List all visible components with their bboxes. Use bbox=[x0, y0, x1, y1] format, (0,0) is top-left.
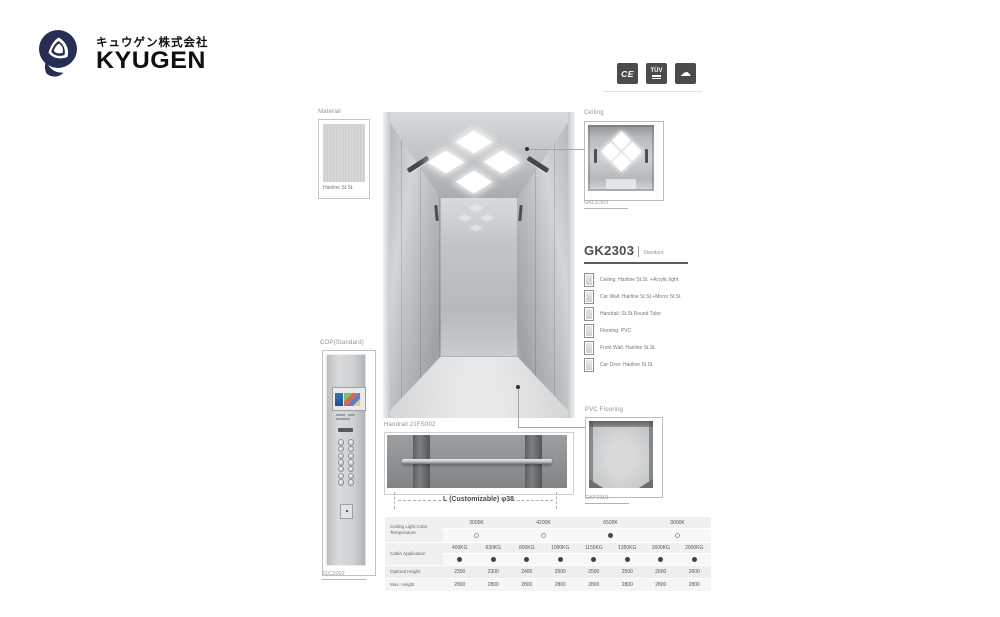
radio-4200k[interactable] bbox=[541, 533, 547, 539]
product-title-rule bbox=[584, 262, 688, 264]
capacity-dot-cell bbox=[510, 554, 544, 565]
cop-button bbox=[348, 439, 355, 446]
ceiling-vent-slot-right bbox=[645, 149, 648, 163]
ceiling-detail-render bbox=[588, 125, 654, 191]
dimension-line-right bbox=[556, 492, 558, 509]
flooring-wall-edge bbox=[649, 421, 653, 488]
door-jamb-left bbox=[383, 112, 390, 418]
flooring-wall-edge bbox=[589, 421, 653, 427]
capacity-dot-cell bbox=[443, 554, 477, 565]
cop-button bbox=[338, 446, 345, 453]
cop-button bbox=[338, 473, 345, 480]
row-label-application: Cabin Application bbox=[385, 543, 443, 565]
temp-option-label: 6500K bbox=[577, 517, 644, 528]
cop-button bbox=[348, 459, 355, 466]
row-label-optimal-height: Optimal Height bbox=[385, 566, 443, 578]
spec-item-handrail: Handrail: St.St.Round Tube bbox=[584, 307, 661, 321]
cop-button bbox=[348, 473, 355, 480]
elevator-interior-render bbox=[383, 112, 575, 418]
pvc-flooring-caption: PVC Flooring bbox=[585, 407, 623, 413]
light-reflection bbox=[458, 214, 472, 222]
spec-table: Ceiling Light Color Temperature Cabin Ap… bbox=[385, 517, 711, 591]
cop-button bbox=[348, 453, 355, 460]
cop-text-line bbox=[336, 418, 350, 420]
cop-display-screen bbox=[332, 387, 366, 411]
optimal-height-value: 2400 bbox=[510, 566, 544, 578]
max-height-value: 2800 bbox=[644, 579, 678, 591]
optimal-height-value: 2500 bbox=[577, 566, 611, 578]
floor-callout-line-h bbox=[518, 427, 585, 428]
company-name-english: KYUGEN bbox=[96, 50, 209, 72]
floor-callout-line-v bbox=[518, 389, 519, 428]
dot-2000kg[interactable] bbox=[692, 557, 697, 562]
cloud-certification-icon: ☁ bbox=[675, 63, 696, 84]
material-thumb-icon bbox=[584, 358, 594, 372]
radio-3000k[interactable] bbox=[474, 533, 480, 539]
cop-key-switch bbox=[340, 504, 353, 519]
capacity-label: 1000KG bbox=[544, 543, 578, 553]
light-reflection bbox=[469, 224, 483, 232]
cop-button bbox=[338, 466, 345, 473]
cop-button bbox=[338, 459, 345, 466]
cop-floor-buttons bbox=[336, 439, 356, 486]
capacity-dot-cell bbox=[544, 554, 578, 565]
optimal-height-value: 2300 bbox=[443, 566, 477, 578]
optimal-height-value: 2300 bbox=[477, 566, 511, 578]
spec-item-car-door: Car Door: Hairline St.St. bbox=[584, 358, 654, 372]
cop-button bbox=[348, 446, 355, 453]
optimal-height-value: 2600 bbox=[644, 566, 678, 578]
material-thumb-icon bbox=[584, 324, 594, 338]
cop-button bbox=[338, 479, 345, 486]
multimedia-screen bbox=[344, 393, 360, 406]
handrail-bar bbox=[402, 459, 552, 464]
cop-caption: COP(Standard) bbox=[320, 340, 364, 346]
capacity-label: 800KG bbox=[510, 543, 544, 553]
flooring-wall-edge bbox=[589, 421, 593, 488]
optimal-height-value: 2500 bbox=[544, 566, 578, 578]
ceiling-callout-line bbox=[529, 149, 584, 150]
cop-text-line bbox=[348, 414, 355, 416]
max-height-value: 2800 bbox=[611, 579, 645, 591]
light-reflection bbox=[480, 214, 494, 222]
temp-option-label: 4200K bbox=[510, 517, 577, 528]
dimension-dash-right bbox=[512, 500, 553, 502]
flooring-corner bbox=[589, 479, 603, 488]
max-height-value: 2800 bbox=[577, 579, 611, 591]
tuv-certification-icon: TÜV bbox=[646, 63, 667, 84]
handrail-caption: Handrail 21FS002 bbox=[384, 422, 436, 428]
material-swatch-card: Hairline St.St. bbox=[318, 119, 370, 199]
cop-button bbox=[348, 479, 355, 486]
temp-radio-cell bbox=[510, 529, 577, 542]
temp-option-label: 3000K bbox=[443, 517, 510, 528]
cop-button bbox=[338, 453, 345, 460]
dot-1000kg[interactable] bbox=[558, 557, 563, 562]
capacity-label: 400KG bbox=[443, 543, 477, 553]
handrail-card bbox=[384, 432, 574, 495]
material-thumb-icon bbox=[584, 290, 594, 304]
dot-1350kg[interactable] bbox=[625, 557, 630, 562]
cop-panel-card bbox=[322, 350, 376, 576]
material-thumb-icon bbox=[584, 273, 594, 287]
temp-radio-cell bbox=[577, 529, 644, 542]
floor-reflection bbox=[606, 179, 636, 189]
spec-item-ceiling: Ceiling: Hairline St.St. +Acrylic light bbox=[584, 273, 678, 287]
capacity-dot-cell bbox=[678, 554, 712, 565]
capacity-label: 1150KG bbox=[577, 543, 611, 553]
optimal-height-value: 2600 bbox=[678, 566, 712, 578]
ceiling-model-label: GKD2303 bbox=[584, 200, 628, 209]
row-label-max-height: Max. Height bbox=[385, 579, 443, 591]
door-jamb-right bbox=[568, 112, 575, 418]
row-label-temperature: Ceiling Light Color Temperature bbox=[385, 517, 443, 542]
cab-back-wall bbox=[441, 197, 517, 357]
temp-option-label: 9000K bbox=[644, 517, 711, 528]
cop-panel-render bbox=[326, 354, 366, 566]
dot-400kg[interactable] bbox=[457, 557, 462, 562]
spec-item-flooring: Flooring: PVC bbox=[584, 324, 631, 338]
dot-1150kg[interactable] bbox=[591, 557, 596, 562]
capacity-label: 630KG bbox=[477, 543, 511, 553]
product-grade: Standard bbox=[643, 250, 663, 257]
dot-800kg[interactable] bbox=[524, 557, 529, 562]
spec-item-front-wall: Front Wall: Hairline St.St. bbox=[584, 341, 656, 355]
material-thumb-icon bbox=[584, 307, 594, 321]
dimension-dash-left bbox=[398, 500, 441, 502]
capacity-label: 1350KG bbox=[611, 543, 645, 553]
header-divider bbox=[603, 91, 702, 92]
flooring-corner bbox=[639, 479, 653, 488]
capacity-dot-cell bbox=[644, 554, 678, 565]
temp-radio-cell bbox=[644, 529, 711, 542]
max-height-value: 2800 bbox=[510, 579, 544, 591]
max-height-value: 2800 bbox=[443, 579, 477, 591]
ceiling-detail-card bbox=[584, 121, 664, 201]
capacity-label: 1600KG bbox=[644, 543, 678, 553]
product-title: GK2303 Standard bbox=[584, 244, 664, 257]
title-divider bbox=[638, 246, 639, 257]
ce-certification-icon: CE bbox=[617, 63, 638, 84]
flooring-model-label: GKP2301 bbox=[585, 495, 629, 504]
handrail-dimension-label: L (Customizable) φ38 bbox=[443, 496, 514, 503]
hairline-steel-swatch bbox=[323, 124, 365, 182]
brochure-page: キュウゲン株式会社 KYUGEN CE TÜV ☁ Material Hairl… bbox=[0, 0, 1000, 617]
cop-speaker-slot bbox=[338, 428, 353, 432]
spec-item-car-wall: Car Wall: Hairline St.St.+Mirror St.St. bbox=[584, 290, 682, 304]
max-height-value: 2800 bbox=[678, 579, 712, 591]
pvc-flooring-card bbox=[585, 417, 663, 498]
dot-630kg[interactable] bbox=[491, 557, 496, 562]
cop-text-line bbox=[336, 414, 345, 416]
product-model: GK2303 bbox=[584, 244, 634, 257]
max-height-value: 2800 bbox=[544, 579, 578, 591]
ceiling-vent-slot-left bbox=[594, 149, 597, 163]
ceiling-caption: Ceiling bbox=[584, 110, 604, 116]
dot-1600kg[interactable] bbox=[658, 557, 663, 562]
temp-radio-cell bbox=[443, 529, 510, 542]
radio-6500k[interactable] bbox=[608, 533, 614, 539]
handrail-render bbox=[387, 435, 567, 488]
logo-wordmark: キュウゲン株式会社 KYUGEN bbox=[96, 34, 209, 73]
light-reflection bbox=[469, 204, 483, 212]
optimal-height-value: 2500 bbox=[611, 566, 645, 578]
dimension-line-left bbox=[394, 492, 396, 509]
kyugen-logo-icon bbox=[38, 28, 78, 80]
radio-9000k[interactable] bbox=[675, 533, 681, 539]
capacity-dot-cell bbox=[577, 554, 611, 565]
material-name: Hairline St.St. bbox=[323, 185, 354, 191]
material-caption: Material bbox=[318, 109, 341, 115]
cop-model-label: 21CZ002 bbox=[322, 571, 366, 580]
capacity-dot-cell bbox=[477, 554, 511, 565]
capacity-label: 2000KG bbox=[678, 543, 712, 553]
material-thumb-icon bbox=[584, 341, 594, 355]
pvc-flooring-render bbox=[589, 421, 653, 488]
certification-badges: CE TÜV ☁ bbox=[617, 63, 696, 84]
max-height-value: 2800 bbox=[477, 579, 511, 591]
floor-indicator-icon bbox=[335, 393, 343, 406]
cop-button bbox=[338, 439, 345, 446]
capacity-dot-cell bbox=[611, 554, 645, 565]
cop-button bbox=[348, 466, 355, 473]
